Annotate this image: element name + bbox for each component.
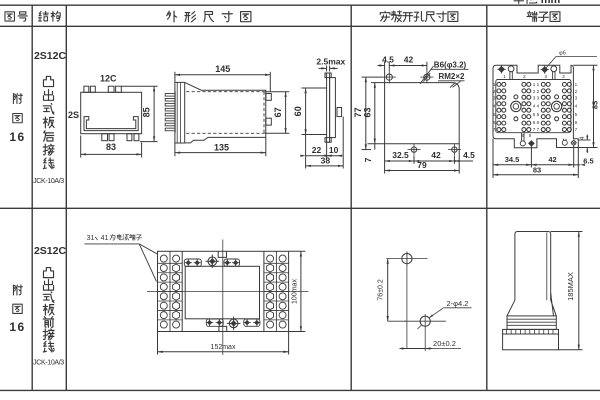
svg-text:1: 1 bbox=[503, 74, 506, 79]
svg-text:2-φ4.2: 2-φ4.2 bbox=[447, 299, 469, 308]
svg-text:3: 3 bbox=[545, 74, 548, 79]
svg-text:41: 41 bbox=[101, 235, 109, 242]
svg-text:12C: 12C bbox=[100, 74, 117, 84]
svg-text:1: 1 bbox=[493, 82, 496, 87]
svg-text:2S12C: 2S12C bbox=[34, 245, 67, 257]
svg-text:145: 145 bbox=[215, 64, 230, 74]
svg-text:2.5max: 2.5max bbox=[316, 56, 345, 66]
svg-text:20±0.2: 20±0.2 bbox=[433, 339, 456, 348]
svg-text:42: 42 bbox=[404, 55, 414, 65]
svg-text:4: 4 bbox=[579, 136, 586, 140]
svg-text:7 7: 7 7 bbox=[533, 127, 540, 132]
svg-text:85: 85 bbox=[141, 107, 151, 117]
svg-text:16: 16 bbox=[9, 130, 25, 144]
svg-text:83: 83 bbox=[533, 165, 541, 174]
svg-text:5 5: 5 5 bbox=[533, 112, 540, 117]
svg-text:4.5: 4.5 bbox=[382, 55, 394, 65]
svg-text:7: 7 bbox=[363, 157, 373, 162]
svg-text:2S: 2S bbox=[68, 110, 79, 120]
svg-text:100max: 100max bbox=[291, 279, 298, 304]
svg-text:4.5: 4.5 bbox=[463, 150, 475, 160]
svg-text:152max: 152max bbox=[211, 344, 236, 351]
svg-text:φ6: φ6 bbox=[559, 51, 566, 57]
svg-text:6 6: 6 6 bbox=[533, 120, 540, 125]
svg-text:2: 2 bbox=[493, 89, 496, 94]
svg-text:JCK-10A/3: JCK-10A/3 bbox=[33, 178, 64, 185]
svg-text:4 4: 4 4 bbox=[533, 104, 540, 109]
svg-text:34.5: 34.5 bbox=[505, 155, 520, 164]
svg-text:10: 10 bbox=[329, 145, 339, 155]
svg-text:JCK-10A/3: JCK-10A/3 bbox=[33, 359, 64, 366]
svg-text:135: 135 bbox=[214, 142, 229, 152]
svg-text:5: 5 bbox=[493, 112, 496, 117]
svg-text:4: 4 bbox=[493, 104, 496, 109]
svg-text:6: 6 bbox=[493, 120, 496, 125]
svg-text:2: 2 bbox=[523, 74, 526, 79]
svg-text:42: 42 bbox=[548, 155, 556, 164]
svg-text:B6(φ3.2): B6(φ3.2) bbox=[434, 60, 467, 69]
svg-text:4: 4 bbox=[575, 104, 578, 109]
svg-text:16: 16 bbox=[9, 320, 25, 334]
svg-text:7: 7 bbox=[493, 127, 496, 132]
svg-text:32.5: 32.5 bbox=[392, 150, 409, 160]
svg-text:67: 67 bbox=[273, 107, 283, 117]
svg-text:42: 42 bbox=[431, 150, 441, 160]
svg-text:5: 5 bbox=[575, 112, 578, 117]
svg-text:60: 60 bbox=[293, 106, 303, 116]
svg-text:31: 31 bbox=[87, 235, 95, 242]
svg-text:185MAX: 185MAX bbox=[566, 272, 575, 301]
svg-text:1 1: 1 1 bbox=[533, 82, 540, 87]
svg-text:63: 63 bbox=[363, 107, 373, 117]
svg-text:RM2×2: RM2×2 bbox=[438, 72, 465, 81]
svg-text:85: 85 bbox=[590, 101, 599, 109]
svg-text:2: 2 bbox=[575, 89, 578, 94]
svg-text:3 3: 3 3 bbox=[533, 96, 540, 101]
svg-text:2S12C: 2S12C bbox=[34, 50, 67, 62]
svg-text:22: 22 bbox=[312, 145, 322, 155]
svg-text:38: 38 bbox=[321, 155, 331, 165]
svg-text:3: 3 bbox=[575, 96, 578, 101]
svg-text:2 2: 2 2 bbox=[533, 89, 540, 94]
svg-text:79: 79 bbox=[417, 160, 427, 170]
svg-text:76±0.2: 76±0.2 bbox=[377, 279, 384, 300]
svg-text:mm: mm bbox=[541, 0, 561, 6]
svg-text:3: 3 bbox=[493, 96, 496, 101]
svg-text:2: 2 bbox=[562, 74, 565, 79]
svg-text:7: 7 bbox=[575, 127, 578, 132]
svg-text:6: 6 bbox=[575, 120, 578, 125]
svg-text:83: 83 bbox=[106, 142, 116, 152]
svg-text:1: 1 bbox=[575, 82, 578, 87]
svg-text:6.5: 6.5 bbox=[583, 157, 593, 166]
